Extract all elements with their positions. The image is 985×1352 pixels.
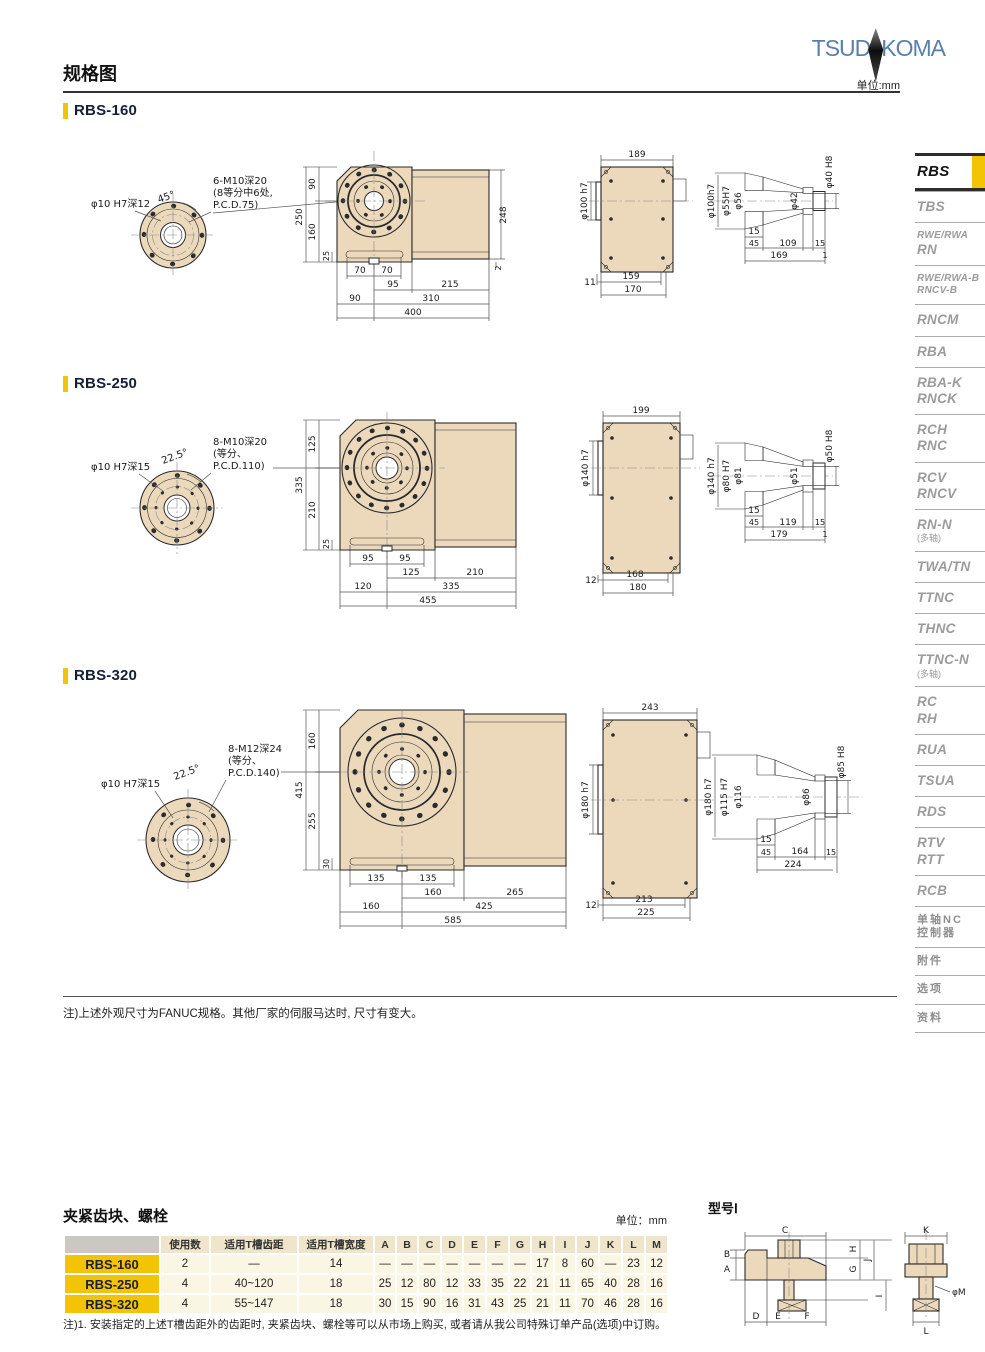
logo-text-left: TSUD [812, 35, 871, 62]
dim-label: 248 [499, 206, 509, 223]
front-view: 250 90 160 25 70 70 95 215 90 310 400 [295, 151, 509, 321]
dim-label: 25 [322, 251, 331, 261]
dim-label: φ10 H7深12 [91, 198, 150, 210]
sidebar-item-label: TWA/TN [917, 559, 985, 575]
dim-label: (8等分中6处, [213, 186, 273, 199]
dim-label: 6-M10深20 [213, 175, 267, 187]
dim-label: 120 [354, 582, 371, 592]
row-model-label: RBS-250 [64, 1274, 160, 1294]
sidebar-item-label: RTV [917, 835, 985, 851]
dim-label: 1 [822, 251, 827, 260]
section-view: φ180 h7 φ115 H7 φ116 φ86 φ85 H8 15 45 16… [704, 745, 863, 873]
dim-label: φ86 [802, 788, 812, 806]
dim-label: 189 [628, 150, 645, 160]
dim-label: 335 [442, 582, 459, 592]
table-cell: — [210, 1254, 298, 1274]
table-cell: 16 [441, 1294, 463, 1314]
row-model-label: RBS-320 [64, 1294, 160, 1314]
dim-label: 400 [404, 308, 421, 318]
sidebar-item-rwe-rwa-b[interactable]: RWE/RWA-BRNCV-B [915, 265, 985, 304]
sidebar-item-label: 单轴NC [917, 914, 985, 927]
section-title: RBS-320 [74, 667, 137, 684]
sidebar-item-ttnc-n[interactable]: TTNC-N(多轴) [915, 644, 985, 686]
table-cell: — [509, 1254, 531, 1274]
sidebar-item-label: RNCV [917, 486, 985, 502]
sidebar-item-rua[interactable]: RUA [915, 734, 985, 765]
column-header: A [374, 1235, 396, 1254]
dim-label: 15 [815, 518, 825, 527]
dim-label: 125 [402, 568, 419, 578]
table-cell: 11 [554, 1294, 576, 1314]
section-marker [63, 103, 68, 119]
flange-view: φ10 H7深15 22.5° 8-M10深20 (等分、 P.C.D.110) [91, 436, 346, 554]
column-header: E [463, 1235, 486, 1254]
table-cell: 40 [599, 1274, 622, 1294]
sidebar-item-label: RCV [917, 470, 985, 486]
table-cell: 21 [531, 1294, 554, 1314]
dim-label: φ115 H7 [720, 778, 730, 816]
dim-label: 215 [441, 280, 458, 290]
sidebar-item-label: TTNC [917, 590, 985, 606]
dim-label: E [775, 1312, 781, 1322]
dim-label: φ140 h7 [707, 457, 717, 494]
column-header: K [599, 1235, 622, 1254]
dim-label: 90 [308, 178, 318, 190]
top-view: 243 φ180 h7 12 213 225 [581, 703, 717, 921]
section-title: RBS-250 [74, 375, 137, 392]
dim-label: 95 [387, 280, 398, 290]
dim-label: 160 [424, 888, 441, 898]
dim-label: (等分、 [228, 754, 262, 767]
column-header: F [486, 1235, 509, 1254]
dim-label: 224 [784, 860, 801, 870]
dim-label: φ180 h7 [704, 778, 714, 815]
sidebar-item-rcv[interactable]: RCVRNCV [915, 462, 985, 509]
dim-label: A [724, 1265, 731, 1275]
table-cell: 25 [374, 1274, 396, 1294]
table-cell: — [396, 1254, 418, 1274]
dim-label: φ10 H7深15 [101, 778, 160, 790]
table-cell: 8 [554, 1254, 576, 1274]
dim-label: φ85 H8 [837, 745, 847, 778]
column-header: J [576, 1235, 599, 1254]
dim-label: φM [952, 1288, 966, 1298]
table-cell: 35 [486, 1274, 509, 1294]
table-cell: — [418, 1254, 441, 1274]
page-title: 规格图 [63, 60, 117, 86]
column-header: G [509, 1235, 531, 1254]
dim-label: φ100h7 [707, 184, 717, 219]
sidebar-item-label: RCH [917, 422, 985, 438]
table-cell: 21 [531, 1274, 554, 1294]
sidebar-item-label: RTT [917, 852, 985, 868]
sidebar-item-label: RN [917, 242, 985, 258]
sidebar-item-twa-tn[interactable]: TWA/TN [915, 551, 985, 582]
table-row: RBS-320455~14718301590163143252111704628… [64, 1294, 668, 1314]
sidebar-item-item-23[interactable]: 资料 [915, 1004, 985, 1033]
dim-label: 30 [322, 859, 331, 869]
table-cell: 4 [160, 1294, 210, 1314]
dim-label: 160 [362, 902, 379, 912]
dim-label: 15 [760, 835, 771, 845]
dim-label: 1 [822, 530, 827, 539]
sidebar-item-label: RCB [917, 883, 985, 899]
model-diagram: C B A H G J I D E F [700, 1214, 985, 1351]
dim-label: 12 [585, 576, 596, 586]
dim-label: 160 [308, 223, 318, 240]
tsudakoma-logo: TSUD KOMA [812, 14, 945, 82]
table-cell: — [486, 1254, 509, 1274]
dim-label: 90 [349, 294, 361, 304]
dim-label: P.C.D.110) [213, 461, 265, 472]
dim-label: K [923, 1226, 930, 1236]
dim-label: J [863, 1259, 873, 1263]
dim-label: 119 [779, 518, 796, 528]
dim-label: 70 [381, 266, 393, 276]
section-marker [63, 376, 68, 392]
dim-label: 159 [622, 272, 639, 282]
sidebar-item-tsua[interactable]: TSUA [915, 765, 985, 796]
table-cell: 16 [645, 1294, 668, 1314]
dim-label: 164 [791, 847, 808, 857]
dim-label: 15 [815, 239, 825, 248]
drawing-rbs160: φ10 H7深12 45° 6-M10深20 (8等分中6处, P.C.D.75… [63, 127, 903, 370]
dim-label: φ50 H8 [825, 429, 835, 462]
table-cell: — [374, 1254, 396, 1274]
dim-label: 25 [322, 539, 331, 549]
sidebar-item-label: 选项 [917, 983, 985, 996]
sidebar-item-item-22[interactable]: 选项 [915, 975, 985, 1003]
table-cell: 18 [298, 1294, 374, 1314]
sidebar-item-rn-n[interactable]: RN-N(多轴) [915, 509, 985, 551]
dim-label: 168 [626, 570, 643, 580]
table-cell: 12 [645, 1254, 668, 1274]
section-view: φ100h7 φ55H7 φ56 φ42 φ40 H8 15 45 109 15… [707, 155, 839, 264]
table-cell: — [599, 1254, 622, 1274]
dim-label: 335 [295, 476, 305, 493]
table-row: RBS-1602—14———————17860—2312 [64, 1254, 668, 1274]
dim-label: 8-M10深20 [213, 436, 267, 448]
clamp-block-side-view: C B A H G J I D E F [724, 1226, 892, 1326]
title-rule [63, 91, 900, 93]
table-cell: 23 [622, 1254, 645, 1274]
dim-label: 45 [761, 848, 771, 857]
sidebar-item-label: TBS [917, 199, 985, 215]
sidebar-item-label: RDS [917, 804, 985, 820]
column-header: L [622, 1235, 645, 1254]
dim-label: 95 [399, 554, 410, 564]
column-header: C [418, 1235, 441, 1254]
drawing-rbs320: φ10 H7深15 22.5° 8-M12深24 (等分、 P.C.D.140) [63, 690, 903, 997]
dim-label: φ100 h7 [580, 182, 590, 219]
dim-label: 425 [475, 902, 492, 912]
dim-label: H [849, 1246, 859, 1253]
active-tab-marker [972, 156, 985, 188]
logo-text-right: KOMA [881, 35, 945, 62]
sidebar-item-label: RNC [917, 438, 985, 454]
section-header-rbs160: RBS-160 [63, 102, 137, 119]
table-cell: 17 [531, 1254, 554, 1274]
table-cell: 43 [486, 1294, 509, 1314]
dim-label: 160 [308, 732, 318, 749]
unit-label-table: 单位：mm [467, 1212, 667, 1228]
dim-label: 310 [422, 294, 439, 304]
dim-label: φ180 h7 [581, 781, 591, 818]
table-cell: 80 [418, 1274, 441, 1294]
sidebar-item-nc[interactable]: 单轴NC控制器 [915, 906, 985, 947]
table-cell: 70 [576, 1294, 599, 1314]
dim-label: 125 [308, 435, 318, 452]
corner-header [64, 1235, 160, 1254]
sidebar-item-label: 附件 [917, 955, 985, 968]
front-view: 335 125 210 25 95 95 125 210 120 335 455 [295, 412, 516, 609]
clamp-table: 使用数适用T槽齿距适用T槽宽度ABCDEFGHIJKLM RBS-1602—14… [63, 1234, 669, 1315]
clamp-table-note: 注)1. 安装指定的上述T槽齿距外的齿距时, 夹紧齿块、螺栓等可以从市场上购买,… [63, 1316, 666, 1332]
sidebar-item-rcb[interactable]: RCB [915, 875, 985, 906]
sidebar-item-rds[interactable]: RDS [915, 796, 985, 827]
dim-label: 135 [367, 874, 384, 884]
dim-label: 12 [585, 901, 596, 911]
sidebar-item-thnc[interactable]: THNC [915, 613, 985, 644]
row-model-label: RBS-160 [64, 1254, 160, 1274]
column-header: 适用T槽宽度 [298, 1235, 374, 1254]
dim-label: 255 [308, 812, 318, 829]
sidebar-item-label: THNC [917, 621, 985, 637]
product-nav-sidebar: RBSTBSRWE/RWARNRWE/RWA-BRNCV-BRNCMRBARBA… [915, 153, 985, 1033]
dim-label: 11 [584, 278, 595, 288]
column-header: 使用数 [160, 1235, 210, 1254]
dim-label: φ42 [790, 192, 800, 209]
dim-label: φ56 [734, 192, 744, 210]
dim-label: 179 [770, 530, 787, 540]
dim-label: 250 [295, 208, 305, 225]
table-cell: 33 [463, 1274, 486, 1294]
table-row: RBS-250440~12018251280123335222111654028… [64, 1274, 668, 1294]
column-header: H [531, 1235, 554, 1254]
dim-label: P.C.D.140) [228, 768, 280, 779]
dim-label: F [804, 1312, 809, 1322]
dim-label: 70 [354, 266, 366, 276]
sidebar-item-rc[interactable]: RCRH [915, 686, 985, 733]
sidebar-item-label: (多轴) [917, 669, 985, 680]
dim-label: 95 [362, 554, 373, 564]
table-cell: 40~120 [210, 1274, 298, 1294]
table-cell: 31 [463, 1294, 486, 1314]
table-cell: 55~147 [210, 1294, 298, 1314]
section-header-rbs320: RBS-320 [63, 667, 137, 684]
column-header: D [441, 1235, 463, 1254]
front-view: 415 160 255 30 135 135 160 265 160 425 5… [295, 710, 566, 929]
dim-label: G [849, 1265, 859, 1272]
sidebar-item-rwe-rwa[interactable]: RWE/RWARN [915, 222, 985, 265]
dim-label: 210 [466, 568, 483, 578]
sidebar-item-label: RWE/RWA-B [917, 273, 985, 285]
dim-label: L [923, 1327, 928, 1337]
table-cell: 28 [622, 1294, 645, 1314]
dim-label: 22.5° [160, 447, 189, 467]
table-cell: 60 [576, 1254, 599, 1274]
clamp-block-front-view: K φM L [905, 1226, 966, 1337]
sidebar-item-rncm[interactable]: RNCM [915, 304, 985, 335]
dim-label: 455 [419, 596, 436, 606]
table-cell: 11 [554, 1274, 576, 1294]
top-view: 199 φ140 h7 12 168 180 [581, 406, 700, 596]
sidebar-item-label: RBA-K [917, 375, 985, 391]
table-cell: — [441, 1254, 463, 1274]
sidebar-item-rch[interactable]: RCHRNC [915, 414, 985, 461]
dim-label: 585 [444, 916, 461, 926]
sidebar-item-label: RUA [917, 742, 985, 758]
dim-label: 265 [506, 888, 523, 898]
sidebar-item-tbs[interactable]: TBS [915, 191, 985, 222]
sidebar-item-rba-k[interactable]: RBA-KRNCK [915, 367, 985, 414]
dim-label: φ116 [734, 785, 744, 808]
sidebar-item-label: RNCM [917, 312, 985, 328]
table-cell: 12 [441, 1274, 463, 1294]
dim-label: φ140 h7 [581, 449, 591, 486]
dim-label: C [782, 1226, 788, 1236]
dim-label: 243 [641, 703, 658, 713]
table-cell: 46 [599, 1294, 622, 1314]
dim-label: φ55H7 [722, 186, 732, 216]
dim-label: φ10 H7深15 [91, 461, 150, 473]
table-cell: 14 [298, 1254, 374, 1274]
dim-label: 213 [635, 895, 652, 905]
dim-label: B [724, 1250, 730, 1260]
sidebar-item-label: (多轴) [917, 533, 985, 544]
sidebar-item-label: RWE/RWA [917, 230, 985, 242]
section-header-rbs250: RBS-250 [63, 375, 137, 392]
column-header: B [396, 1235, 418, 1254]
sidebar-item-ttnc[interactable]: TTNC [915, 582, 985, 613]
dim-label: 15 [748, 506, 759, 516]
sidebar-item-label: RN-N [917, 517, 985, 533]
column-header: M [645, 1235, 668, 1254]
dim-label: φ80 H7 [722, 460, 732, 493]
sidebar-item-label: RH [917, 711, 985, 727]
table-cell: 22 [509, 1274, 531, 1294]
clamp-table-title: 夹紧齿块、螺栓 [63, 1205, 168, 1226]
table-cell: 30 [374, 1294, 396, 1314]
table-cell: 16 [645, 1274, 668, 1294]
sidebar-item-item-21[interactable]: 附件 [915, 947, 985, 975]
drawings-note: 注)上述外观尺寸为FANUC规格。其他厂家的伺服马达时, 尺寸有变大。 [63, 1005, 423, 1021]
dim-label: 415 [295, 781, 305, 798]
section-title: RBS-160 [74, 102, 137, 119]
sidebar-item-rtv[interactable]: RTVRTT [915, 827, 985, 874]
sidebar-item-rba[interactable]: RBA [915, 336, 985, 367]
section-view: φ140 h7 φ80 H7 φ81 φ51 φ50 H8 15 45 119 … [707, 429, 839, 543]
dim-label: 2 [494, 265, 503, 270]
sidebar-item-label: TSUA [917, 773, 985, 789]
dim-label: 45 [749, 239, 759, 248]
dim-label: φ40 H8 [825, 155, 835, 188]
sidebar-item-label: TTNC-N [917, 652, 985, 668]
sidebar-item-label: 资料 [917, 1012, 985, 1025]
dim-label: 210 [308, 501, 318, 518]
catalog-page: TSUD KOMA 规格图 单位:mm RBS-160 RBS-250 RBS-… [0, 0, 985, 1352]
dim-label: 45 [749, 518, 759, 527]
dim-label: 15 [748, 227, 759, 237]
table-cell: 28 [622, 1274, 645, 1294]
section-marker [63, 668, 68, 684]
dim-label: (等分、 [213, 447, 247, 460]
dim-label: I [875, 1295, 885, 1298]
drawing-rbs250: φ10 H7深15 22.5° 8-M10深20 (等分、 P.C.D.110) [63, 398, 903, 665]
drawings-bottom-rule [63, 996, 897, 997]
sidebar-item-label: 控制器 [917, 927, 985, 940]
sidebar-item-label: RBA [917, 344, 985, 360]
dim-label: 22.5° [172, 763, 201, 783]
sidebar-item-label: RC [917, 694, 985, 710]
table-cell: 25 [509, 1294, 531, 1314]
dim-label: φ51 [790, 467, 800, 484]
column-header: I [554, 1235, 576, 1254]
dim-label: 169 [770, 251, 787, 261]
table-cell: — [463, 1254, 486, 1274]
table-cell: 4 [160, 1274, 210, 1294]
dim-label: 8-M12深24 [228, 743, 282, 755]
dim-label: 170 [624, 285, 641, 295]
dim-label: 15 [826, 848, 836, 857]
dim-label: D [753, 1312, 760, 1322]
table-cell: 65 [576, 1274, 599, 1294]
table-cell: 90 [418, 1294, 441, 1314]
dim-label: 109 [779, 239, 796, 249]
dim-label: 225 [637, 908, 654, 918]
table-cell: 12 [396, 1274, 418, 1294]
table-cell: 2 [160, 1254, 210, 1274]
table-cell: 18 [298, 1274, 374, 1294]
dim-label: φ81 [734, 467, 744, 484]
sidebar-item-label: RNCV-B [917, 285, 985, 297]
dim-label: 135 [419, 874, 436, 884]
column-header: 适用T槽齿距 [210, 1235, 298, 1254]
dim-label: 199 [632, 406, 649, 416]
table-cell: 15 [396, 1294, 418, 1314]
sidebar-item-label: RNCK [917, 391, 985, 407]
top-view: 189 φ100 h7 11 159 170 [580, 150, 693, 298]
sidebar-item-rbs[interactable]: RBS [915, 153, 985, 191]
dim-label: 180 [629, 583, 646, 593]
